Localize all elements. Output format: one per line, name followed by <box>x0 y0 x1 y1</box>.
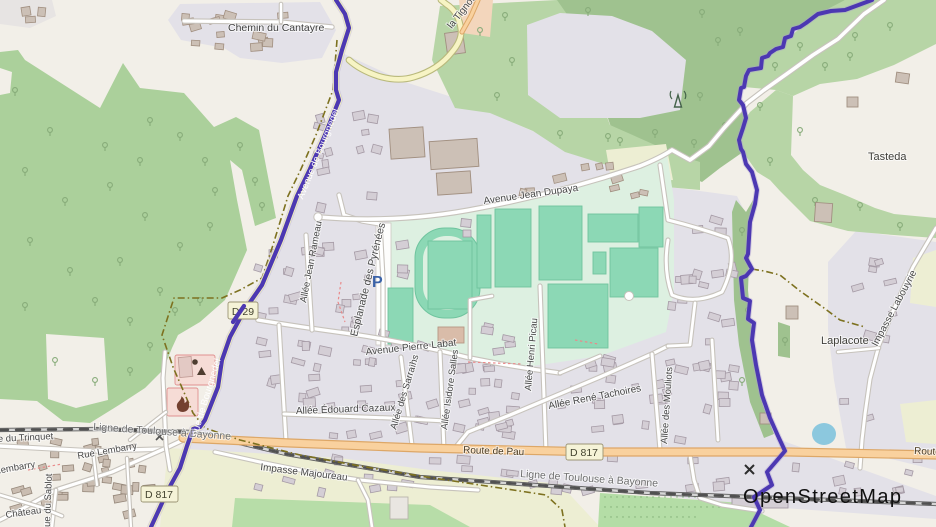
svg-text:D 817: D 817 <box>570 447 598 459</box>
svg-text:Route de Pau: Route de Pau <box>463 445 525 458</box>
svg-text:ue du Sablot: ue du Sablot <box>42 473 55 527</box>
svg-text:D 817: D 817 <box>145 489 173 501</box>
svg-text:Chemin du Cantayre: Chemin du Cantayre <box>228 22 324 34</box>
svg-text:Laplacote: Laplacote <box>821 335 869 347</box>
svg-text:OpenStreetMap: OpenStreetMap <box>743 486 902 508</box>
svg-text:Tasteda: Tasteda <box>868 151 907 163</box>
